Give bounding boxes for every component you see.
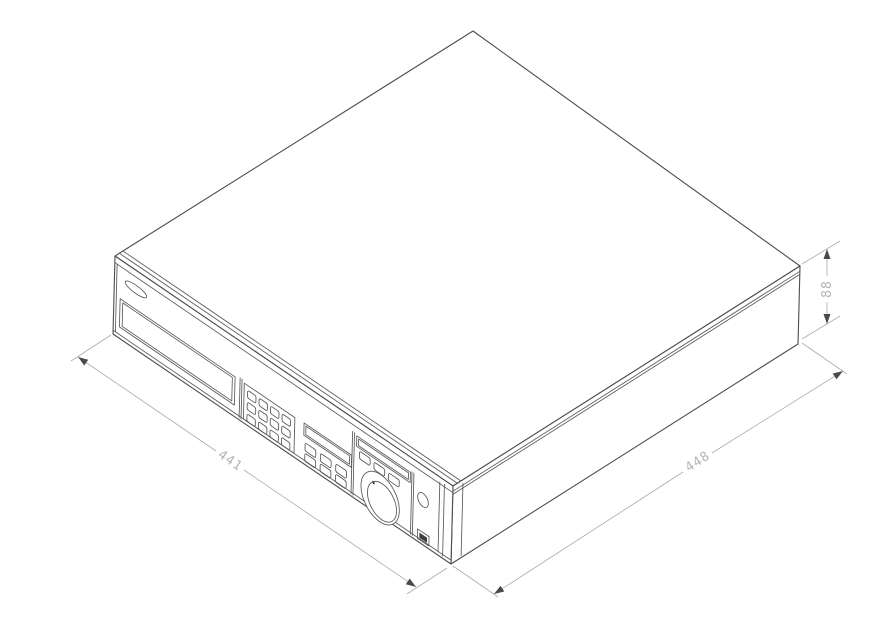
dimension-height: 88 <box>802 241 840 339</box>
dimension-height-label: 88 <box>820 280 835 298</box>
arrowhead <box>78 357 88 366</box>
arrowhead <box>494 586 504 594</box>
top-face <box>115 31 800 486</box>
dimension-depth-label: 448 <box>683 448 713 475</box>
extension-line <box>802 241 840 264</box>
extension-line <box>453 566 498 597</box>
isometric-device-drawing: 441 448 88 <box>0 0 885 622</box>
extension-line <box>407 568 447 594</box>
dimension-width-label: 441 <box>215 447 245 474</box>
technical-drawing-page: 441 448 88 <box>0 0 885 622</box>
top-face-outline <box>115 31 800 486</box>
arrowhead <box>406 579 416 588</box>
extension-line <box>71 335 111 361</box>
extension-line <box>802 343 847 374</box>
extension-line <box>802 316 840 339</box>
arrowhead <box>833 371 843 379</box>
